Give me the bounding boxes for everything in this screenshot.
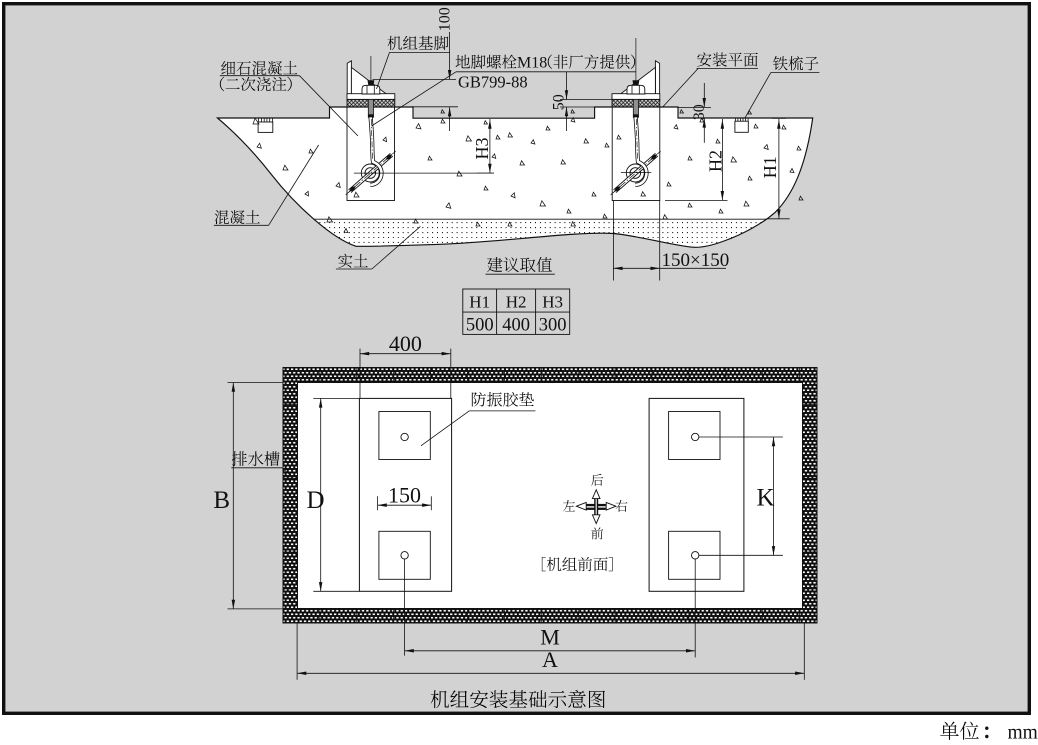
svg-text:300: 300 — [539, 315, 567, 335]
svg-text:GB799-88: GB799-88 — [458, 72, 528, 91]
svg-text:400: 400 — [389, 331, 422, 356]
svg-text:B: B — [213, 487, 230, 514]
svg-text:150: 150 — [388, 482, 421, 507]
svg-text:500: 500 — [466, 315, 494, 335]
svg-text:50: 50 — [550, 94, 567, 110]
svg-text:H3: H3 — [472, 138, 492, 160]
svg-text:H2: H2 — [506, 293, 527, 312]
svg-text:150×150: 150×150 — [662, 250, 730, 271]
svg-text:H3: H3 — [542, 293, 563, 312]
svg-text:D: D — [307, 487, 325, 514]
svg-text:H1: H1 — [469, 293, 490, 312]
svg-text:K: K — [757, 484, 775, 511]
svg-text:mm: mm — [1008, 723, 1038, 744]
svg-text:400: 400 — [502, 315, 530, 335]
svg-text:100: 100 — [437, 7, 454, 31]
svg-text:M18: M18 — [517, 55, 547, 72]
svg-text:H1: H1 — [760, 156, 780, 178]
svg-text:30: 30 — [691, 104, 708, 120]
svg-text:A: A — [542, 647, 558, 672]
svg-text:H2: H2 — [706, 150, 726, 172]
